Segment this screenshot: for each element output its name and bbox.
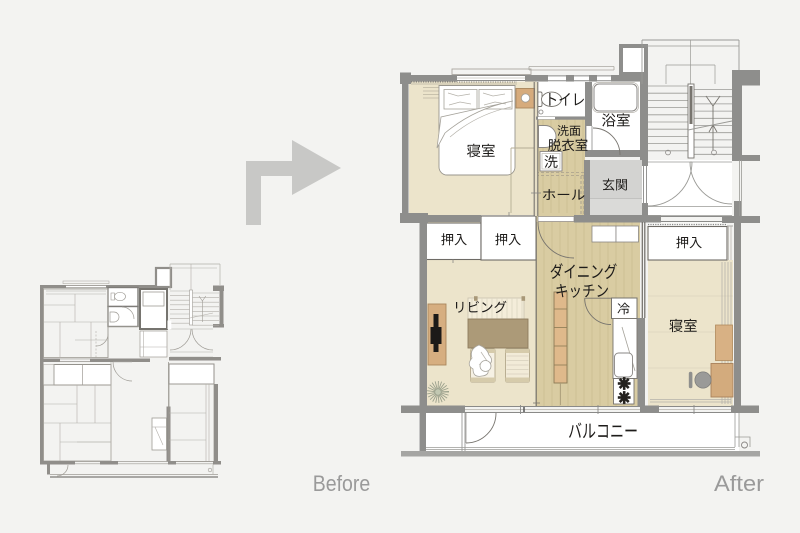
svg-text:After: After	[714, 471, 765, 496]
svg-text:Before: Before	[313, 471, 371, 496]
